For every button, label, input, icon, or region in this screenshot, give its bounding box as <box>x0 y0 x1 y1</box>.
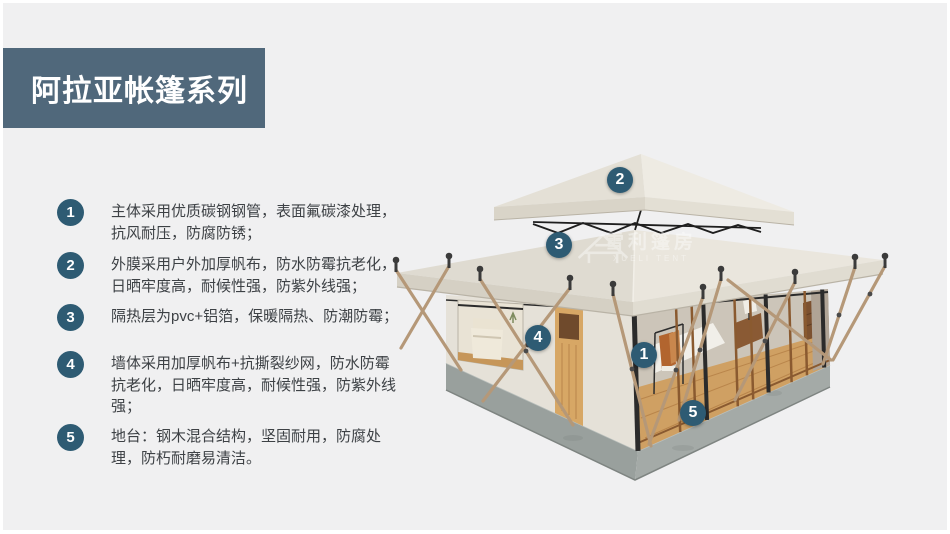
cap-roof <box>494 154 794 225</box>
slide-canvas: 阿拉亚帐篷系列 1 主体采用优质碳钢钢管，表面氟碳漆处理，抗风耐压，防腐防锈； … <box>0 0 950 534</box>
tent-marker-2: 2 <box>607 167 633 193</box>
tent-illustration <box>383 138 903 498</box>
feature-number-badge: 1 <box>57 199 84 226</box>
title-banner: 阿拉亚帐篷系列 <box>3 48 265 128</box>
left-door-opening <box>555 301 583 426</box>
feature-text: 隔热层为pvc+铝箔，保暖隔热、防潮防霉； <box>111 306 399 331</box>
feature-item-5: 5 地台：钢木混合结构，坚固耐用，防腐处理，防朽耐磨易清洁。 <box>57 424 399 469</box>
feature-text: 墙体采用加厚帆布+抗撕裂纱网，防水防霉抗老化，日晒牢度高，耐候性强，防紫外线强； <box>111 353 399 418</box>
feature-text: 地台：钢木混合结构，坚固耐用，防腐处理，防朽耐磨易清洁。 <box>111 426 399 469</box>
feature-item-1: 1 主体采用优质碳钢钢管，表面氟碳漆处理，抗风耐压，防腐防锈； <box>57 199 399 244</box>
slide-background: 阿拉亚帐篷系列 1 主体采用优质碳钢钢管，表面氟碳漆处理，抗风耐压，防腐防锈； … <box>3 3 947 530</box>
tent-product-image: 雪利篷房 XUELI TENT 2 3 4 1 5 <box>383 138 903 498</box>
tent-marker-4: 4 <box>525 325 551 351</box>
feature-text: 外膜采用户外加厚帆布，防水防霉抗老化，日晒牢度高，耐候性强，防紫外线强； <box>111 254 399 297</box>
feature-number-badge: 2 <box>57 252 84 279</box>
feature-number-badge: 5 <box>57 424 84 451</box>
feature-number-badge: 3 <box>57 304 84 331</box>
page-title: 阿拉亚帐篷系列 <box>31 66 248 110</box>
feature-text: 主体采用优质碳钢钢管，表面氟碳漆处理，抗风耐压，防腐防锈； <box>111 201 399 244</box>
feature-item-4: 4 墙体采用加厚帆布+抗撕裂纱网，防水防霉抗老化，日晒牢度高，耐候性强，防紫外线… <box>57 351 399 418</box>
feature-item-3: 3 隔热层为pvc+铝箔，保暖隔热、防潮防霉； <box>57 304 399 331</box>
feature-number-badge: 4 <box>57 351 84 378</box>
tent-marker-1: 1 <box>631 342 657 368</box>
feature-item-2: 2 外膜采用户外加厚帆布，防水防霉抗老化，日晒牢度高，耐候性强，防紫外线强； <box>57 252 399 297</box>
tent-marker-3: 3 <box>546 232 572 258</box>
tent-marker-5: 5 <box>680 400 706 426</box>
